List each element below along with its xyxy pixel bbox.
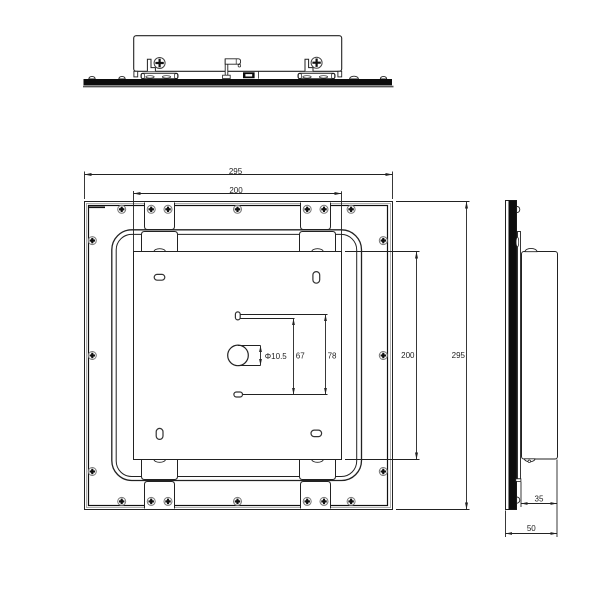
svg-text:50: 50 (527, 524, 536, 533)
svg-text:Φ10.5: Φ10.5 (265, 352, 288, 361)
svg-text:200: 200 (229, 186, 243, 195)
svg-text:200: 200 (401, 351, 415, 360)
svg-text:78: 78 (328, 351, 337, 360)
svg-text:35: 35 (535, 495, 544, 504)
svg-text:67: 67 (296, 351, 305, 360)
svg-text:295: 295 (229, 167, 243, 176)
svg-text:295: 295 (452, 351, 466, 360)
